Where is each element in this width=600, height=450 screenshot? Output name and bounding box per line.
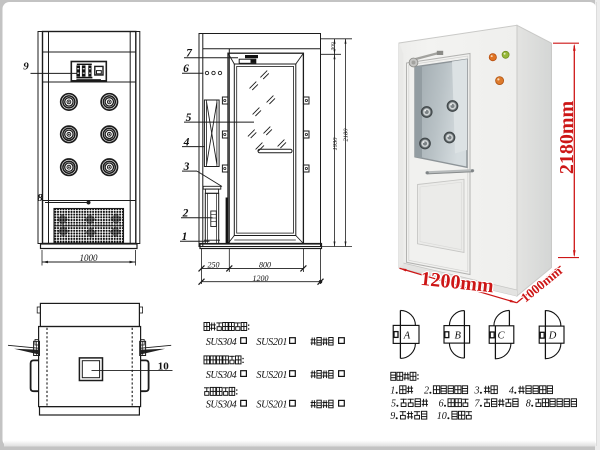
svg-text:SUS304: SUS304 <box>206 400 237 411</box>
svg-text:SUS201: SUS201 <box>256 370 287 381</box>
svg-text:A: A <box>403 330 411 341</box>
svg-text:250: 250 <box>208 261 220 270</box>
svg-text:2: 2 <box>424 385 429 396</box>
svg-text:C: C <box>497 330 505 341</box>
svg-text:4: 4 <box>509 385 514 396</box>
svg-text:SUS201: SUS201 <box>256 400 287 411</box>
svg-text:6: 6 <box>439 398 444 409</box>
svg-text:1200: 1200 <box>253 274 269 283</box>
svg-text:SUS304: SUS304 <box>206 370 237 381</box>
svg-text:8: 8 <box>37 192 43 204</box>
svg-text:9: 9 <box>23 61 29 73</box>
svg-text:1: 1 <box>390 385 395 396</box>
svg-text:10: 10 <box>158 360 170 372</box>
svg-text:1930: 1930 <box>332 137 339 151</box>
svg-text:3: 3 <box>474 385 480 396</box>
svg-text:SUS304: SUS304 <box>206 337 237 348</box>
svg-text:D: D <box>548 330 557 341</box>
svg-text:2180: 2180 <box>342 128 349 142</box>
svg-text:2180mm: 2180mm <box>556 101 578 175</box>
svg-text:8: 8 <box>526 398 531 409</box>
svg-text:B: B <box>454 330 461 341</box>
svg-text:800: 800 <box>259 261 271 270</box>
svg-text:9: 9 <box>390 411 395 422</box>
svg-text:10: 10 <box>437 411 447 422</box>
svg-text:SUS201: SUS201 <box>256 337 287 348</box>
svg-text:300: 300 <box>330 42 336 52</box>
svg-text:5: 5 <box>391 398 396 409</box>
svg-text:1000: 1000 <box>80 253 99 263</box>
